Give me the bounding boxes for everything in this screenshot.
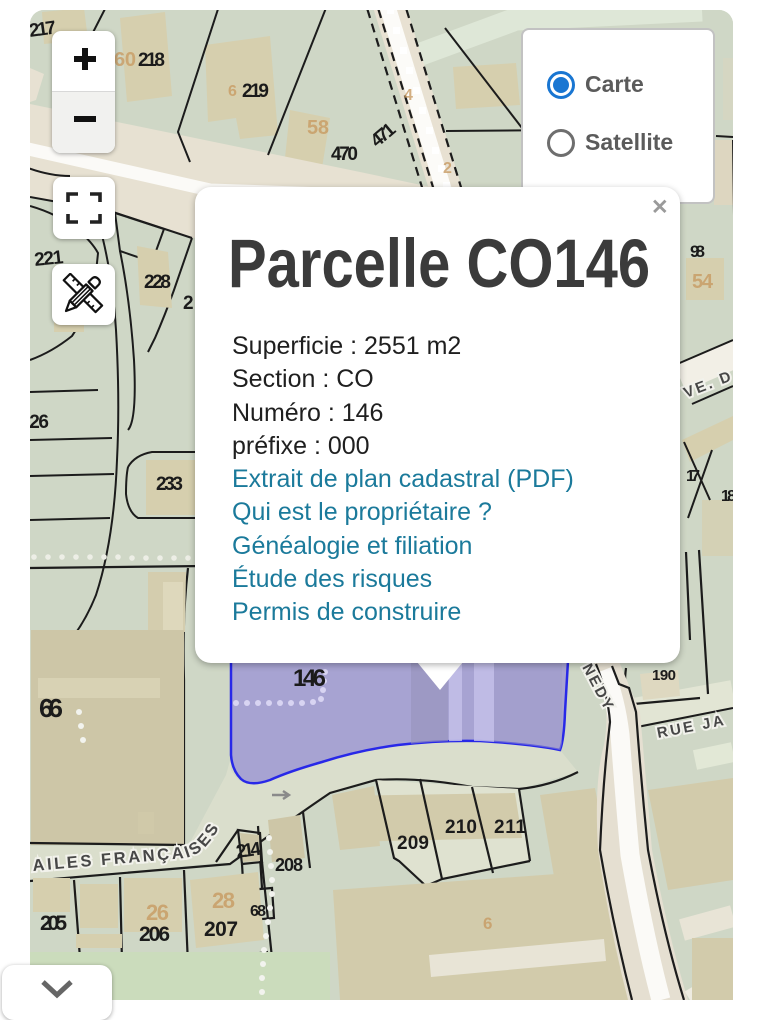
- svg-text:54: 54: [692, 271, 714, 293]
- svg-text:2: 2: [443, 160, 452, 177]
- svg-text:190: 190: [652, 667, 676, 684]
- svg-text:26: 26: [146, 900, 169, 925]
- svg-text:209: 209: [397, 833, 429, 854]
- svg-text:226: 226: [30, 412, 49, 433]
- svg-text:17: 17: [686, 468, 700, 485]
- svg-text:58: 58: [307, 117, 329, 139]
- svg-text:233: 233: [156, 474, 183, 495]
- svg-text:18: 18: [721, 488, 733, 505]
- svg-text:4: 4: [404, 87, 413, 104]
- svg-text:206: 206: [139, 923, 170, 946]
- svg-text:66: 66: [39, 693, 63, 723]
- svg-text:210: 210: [445, 817, 477, 838]
- svg-text:219: 219: [242, 81, 269, 102]
- svg-text:68: 68: [250, 903, 266, 920]
- svg-text:6: 6: [483, 914, 492, 933]
- svg-text:6: 6: [228, 83, 237, 100]
- svg-text:205: 205: [40, 912, 67, 935]
- svg-text:146: 146: [293, 665, 326, 692]
- svg-text:208: 208: [275, 855, 303, 875]
- svg-text:470: 470: [331, 144, 358, 165]
- svg-text:218: 218: [138, 50, 165, 71]
- svg-text:2: 2: [183, 293, 194, 314]
- svg-text:228: 228: [144, 272, 171, 293]
- svg-text:98: 98: [690, 242, 705, 261]
- svg-text:214: 214: [235, 839, 263, 863]
- svg-text:207: 207: [204, 918, 238, 941]
- svg-text:211: 211: [494, 817, 526, 838]
- svg-text:28: 28: [212, 888, 235, 913]
- svg-text:60: 60: [114, 49, 136, 71]
